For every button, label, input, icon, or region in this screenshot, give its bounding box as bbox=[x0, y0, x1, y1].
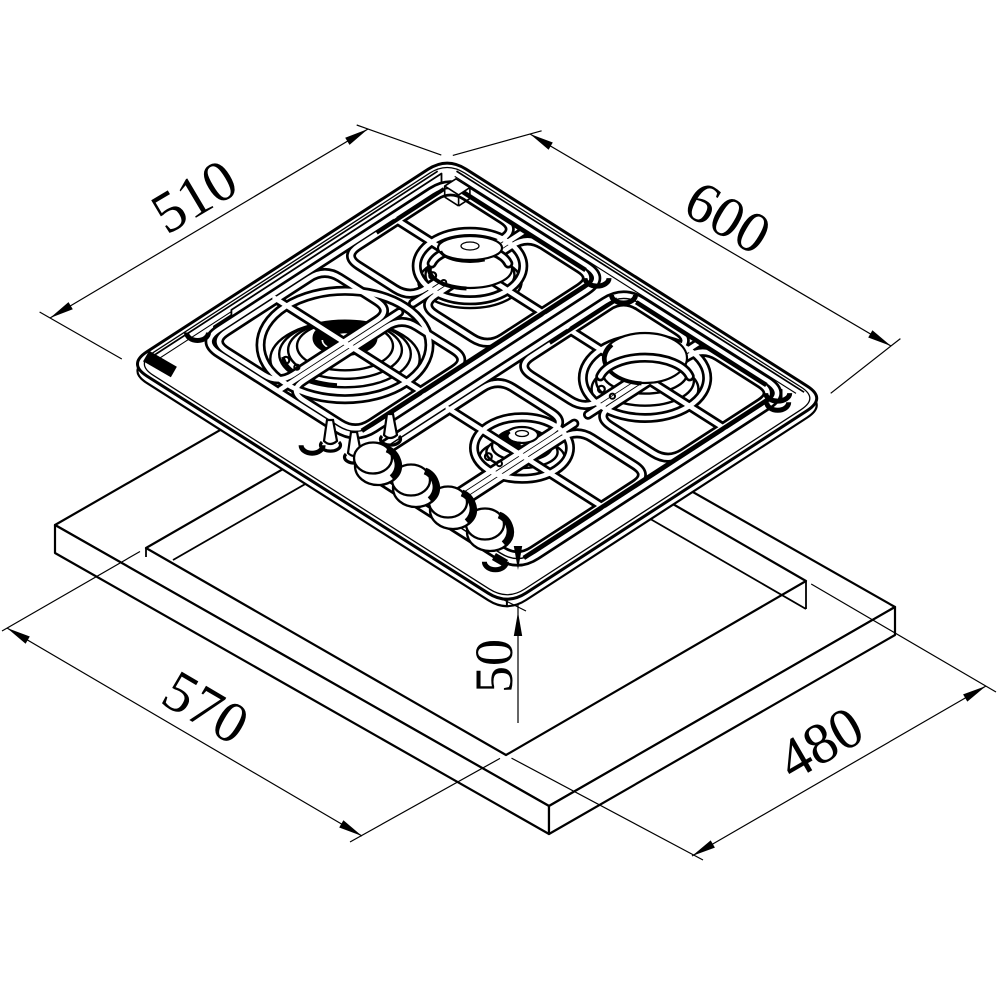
svg-text:50: 50 bbox=[464, 639, 524, 693]
